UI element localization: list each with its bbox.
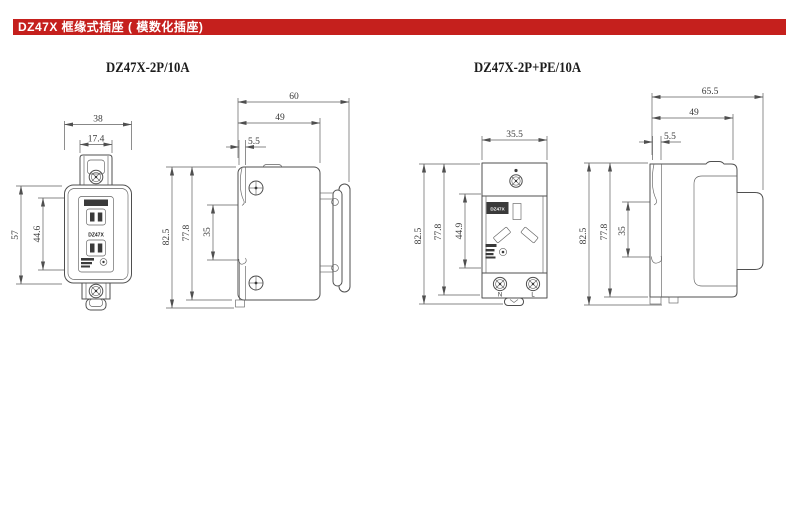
module-body bbox=[482, 163, 547, 298]
dim-left-side-rail-thickness: 5.5 bbox=[248, 137, 260, 147]
face-model-label: DZ47X bbox=[490, 207, 505, 212]
face-model-label: DZ47X bbox=[88, 233, 104, 239]
top-hole bbox=[514, 169, 517, 172]
rating-text-lines bbox=[486, 244, 497, 247]
dim-right-side-depth-body: 49 bbox=[689, 108, 699, 118]
side-profile bbox=[650, 162, 763, 298]
side-body bbox=[238, 167, 320, 300]
dim-left-side-height-outer: 82.5 bbox=[162, 228, 172, 245]
din-clip-foot bbox=[236, 300, 245, 307]
dim-left-front-width-inner: 17.4 bbox=[88, 135, 105, 145]
catalog-page: DZ47X 框缘式插座 ( 模数化插座) DZ47X-2P/10A DZ47X-… bbox=[0, 0, 786, 521]
dim-right-front-height-outer: 82.5 bbox=[414, 227, 424, 244]
terminal-n-label: N bbox=[498, 293, 502, 299]
left-side-view: 60 49 5.5 82.5 77.8 35 bbox=[162, 92, 350, 308]
brand-label-block bbox=[84, 200, 108, 207]
dim-left-front-width-outer: 38 bbox=[93, 115, 103, 125]
top-clip bbox=[88, 160, 105, 174]
rating-text-lines bbox=[81, 258, 94, 261]
dim-right-front-width-outer: 35.5 bbox=[506, 130, 523, 140]
dim-right-front-height-inner: 44.9 bbox=[455, 222, 465, 239]
screw-icon bbox=[89, 284, 103, 298]
din-clip-foot bbox=[650, 297, 661, 304]
screw-icon bbox=[510, 175, 522, 187]
left-front-view: 38 17.4 57 44.6 bbox=[11, 115, 132, 311]
screw-icon bbox=[493, 277, 506, 290]
dim-left-side-depth-outer: 60 bbox=[289, 92, 299, 102]
dim-left-side-depth-body: 49 bbox=[275, 113, 285, 123]
dim-left-side-rail-span: 35 bbox=[203, 227, 213, 237]
dim-right-side-height-outer: 82.5 bbox=[579, 227, 589, 244]
dim-right-side-rail-thickness: 5.5 bbox=[664, 132, 676, 142]
dim-left-front-height-inner: 44.6 bbox=[33, 225, 43, 242]
technical-drawings-canvas: 38 17.4 57 44.6 bbox=[0, 0, 786, 521]
dim-right-side-rail-span: 35 bbox=[618, 226, 628, 236]
dim-right-side-depth-outer: 65.5 bbox=[702, 87, 719, 97]
screw-icon bbox=[249, 276, 263, 290]
din-clip bbox=[86, 299, 106, 310]
screw-icon bbox=[526, 277, 539, 290]
right-side-view: 65.5 49 5.5 82.5 77.8 35 bbox=[579, 87, 763, 305]
dim-left-side-height-body: 77.8 bbox=[182, 224, 192, 241]
screw-icon bbox=[89, 170, 103, 184]
right-front-view: 35.5 82.5 77.8 44.9 bbox=[414, 130, 547, 306]
dim-right-side-height-body: 77.8 bbox=[600, 223, 610, 240]
dim-left-front-height-outer: 57 bbox=[11, 230, 21, 240]
dim-right-front-height-body: 77.8 bbox=[434, 223, 444, 240]
din-clip bbox=[505, 298, 524, 306]
screw-icon bbox=[249, 181, 263, 195]
